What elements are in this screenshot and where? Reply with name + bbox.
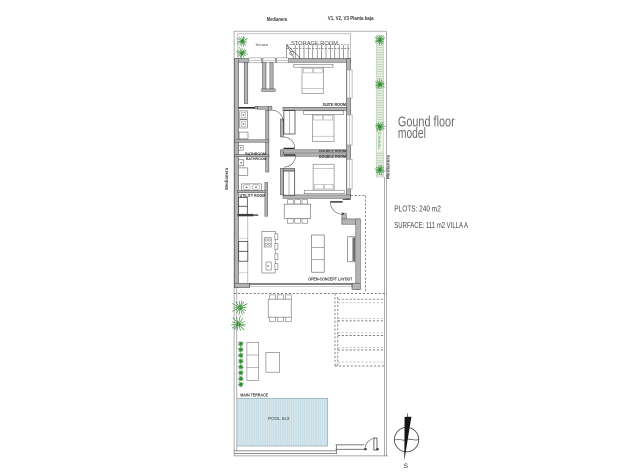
svg-text:Medianera: Medianera xyxy=(386,155,392,179)
svg-text:BATHROOM: BATHROOM xyxy=(246,156,267,161)
svg-text:S: S xyxy=(404,463,409,470)
svg-text:Medianera: Medianera xyxy=(267,17,288,23)
svg-text:OPEN-CONCEPT LAYOUT: OPEN-CONCEPT LAYOUT xyxy=(308,277,352,282)
svg-text:model: model xyxy=(398,125,426,142)
svg-text:MAIN TERRACE: MAIN TERRACE xyxy=(240,393,268,398)
svg-text:DOUBLE ROOM: DOUBLE ROOM xyxy=(319,154,346,159)
svg-text:STORAGE ROOM: STORAGE ROOM xyxy=(291,41,338,47)
svg-text:PLOTS: 240 m2: PLOTS: 240 m2 xyxy=(394,205,441,214)
svg-text:SURFACE: 111 m2 VILLA A: SURFACE: 111 m2 VILLA A xyxy=(394,221,468,230)
svg-text:V1, V2, V3 Planta baja: V1, V2, V3 Planta baja xyxy=(328,16,374,22)
svg-text:Medianera: Medianera xyxy=(224,167,230,189)
svg-text:POOL 6x3: POOL 6x3 xyxy=(268,416,290,421)
svg-text:DOUBLE ROOM: DOUBLE ROOM xyxy=(319,149,346,154)
svg-text:SUITE ROOM: SUITE ROOM xyxy=(323,102,347,107)
svg-text:Terraza: Terraza xyxy=(255,43,269,47)
svg-text:TERRACE: TERRACE xyxy=(378,131,382,149)
